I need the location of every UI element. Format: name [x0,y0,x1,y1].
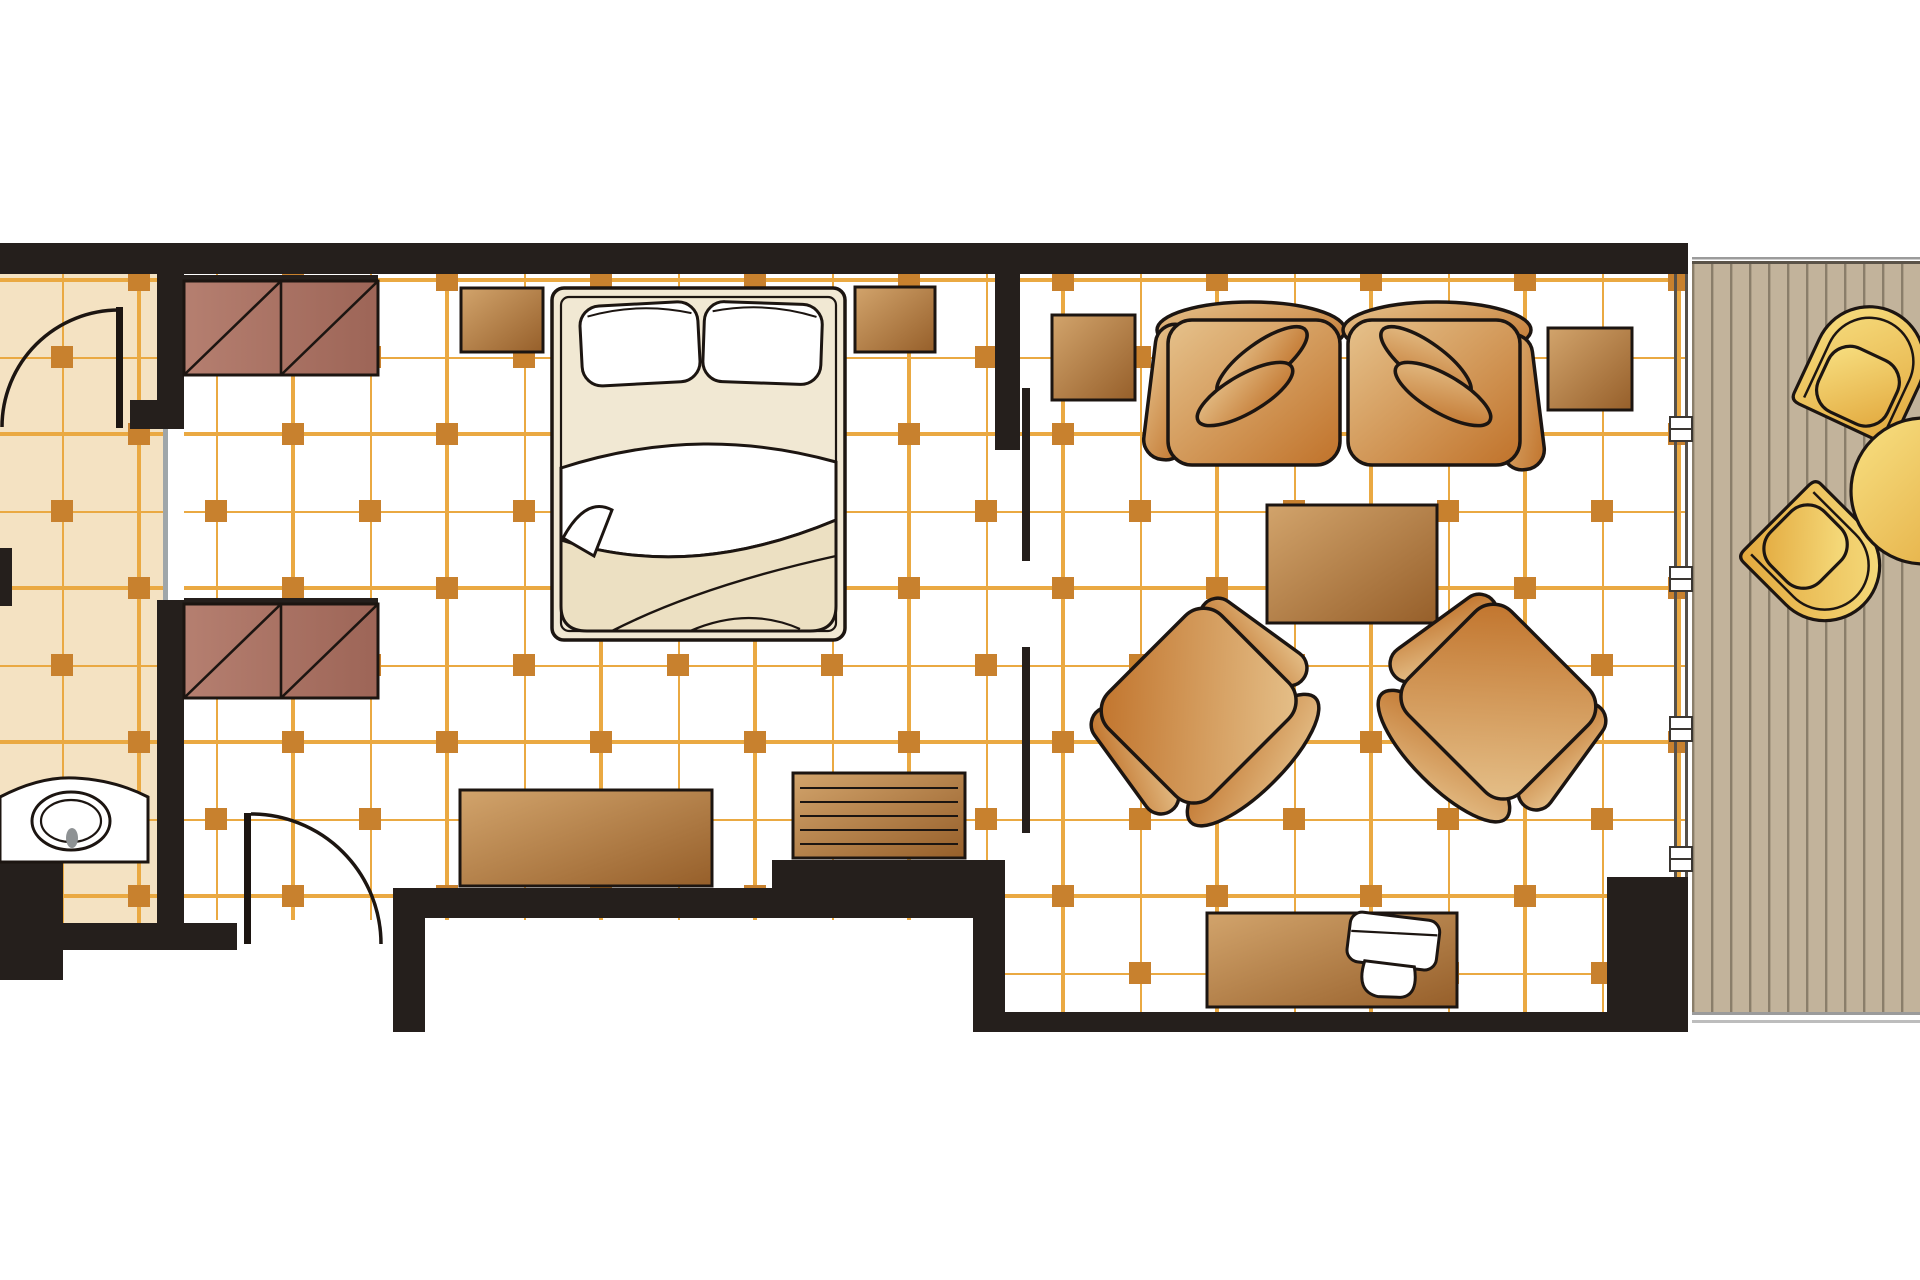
bedroom-bottom-wall-leg [393,918,425,1032]
double-bed [552,288,845,640]
nightstand-right [855,287,935,352]
bedroom-right-wall-block [772,860,1005,918]
pillow [702,301,823,385]
side-table-right [1548,328,1632,410]
living-corner-wall-block [1607,877,1688,1032]
bath-divider-foot [130,400,184,429]
hall-wall-leg [973,918,1005,1032]
coffee-table [1267,505,1437,623]
bottom-left-wall-block [0,862,63,980]
window-mullion [1670,567,1692,591]
nightstand-left [461,288,543,352]
bedroom-bottom-wall [393,888,772,918]
floor-plan-drawing [0,0,1920,1280]
partition-wall [995,274,1020,450]
wardrobe-2 [184,598,378,698]
window-mullion [1670,717,1692,741]
entry-jamb-wall [63,923,237,950]
sliding-door-panel-upper [1022,388,1030,561]
left-wall-stub [0,548,12,606]
top-wall [0,243,1688,274]
window-mullion [1670,417,1692,441]
sliding-door-panel-lower [1022,647,1030,833]
vanity-sink [0,778,148,862]
living-bottom-wall [1005,1012,1688,1032]
dresser [460,790,712,886]
window-mullion [1670,847,1692,871]
pillow [579,301,701,387]
faucet [66,828,78,848]
bathroom-glass-partition [163,429,168,600]
luggage-bench [793,773,965,858]
bath-divider-wall-lower [157,600,184,923]
side-table-left [1052,315,1135,400]
floor-plan-canvas [0,0,1920,1280]
wardrobe-1 [184,275,378,375]
